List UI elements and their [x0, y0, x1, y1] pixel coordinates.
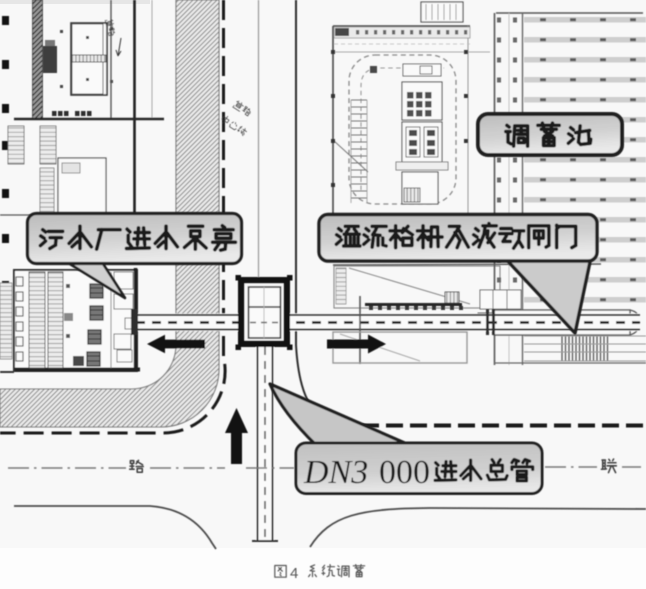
- svg-text:4: 4: [290, 565, 298, 582]
